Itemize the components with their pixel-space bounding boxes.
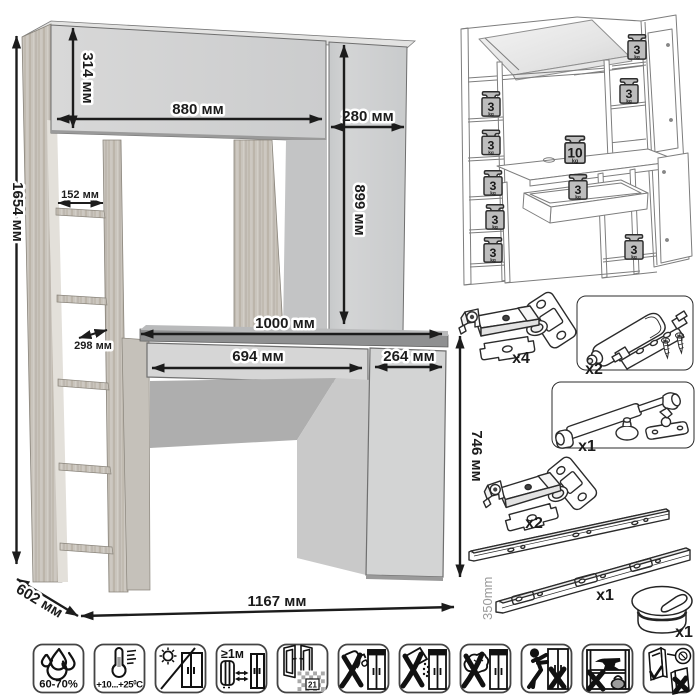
svg-text:+10...+250С: +10...+250С [96, 680, 143, 691]
svg-text:kg: kg [488, 111, 494, 117]
svg-text:≥1м: ≥1м [221, 647, 244, 661]
svg-text:kg: kg [631, 254, 637, 260]
svg-text:152 мм: 152 мм [61, 189, 99, 201]
svg-text:280 мм: 280 мм [342, 108, 393, 125]
svg-text:350mm: 350mm [480, 577, 495, 620]
svg-text:x1: x1 [578, 438, 596, 455]
svg-text:kg: kg [575, 194, 581, 200]
svg-text:1654 мм: 1654 мм [9, 182, 26, 242]
svg-text:x1: x1 [675, 624, 693, 641]
svg-text:x4: x4 [512, 350, 530, 367]
svg-text:880 мм: 880 мм [172, 101, 223, 118]
svg-text:kg: kg [490, 257, 496, 263]
svg-text:kg: kg [572, 159, 578, 165]
svg-text:kg: kg [492, 224, 498, 230]
svg-text:694 мм: 694 мм [232, 348, 283, 365]
svg-text:x2: x2 [525, 515, 543, 532]
svg-text:1000 мм: 1000 мм [255, 315, 315, 332]
svg-text:kg: kg [634, 54, 640, 60]
svg-text:264 мм: 264 мм [383, 348, 434, 365]
svg-text:298 мм: 298 мм [74, 340, 112, 352]
svg-text:60-70%: 60-70% [39, 679, 78, 691]
svg-text:1167 мм: 1167 мм [248, 593, 307, 610]
svg-text:746 мм: 746 мм [468, 430, 485, 481]
svg-text:899 мм: 899 мм [351, 184, 368, 235]
svg-text:21: 21 [308, 680, 317, 689]
svg-text:x2: x2 [585, 361, 603, 378]
svg-text:kg: kg [626, 98, 632, 104]
svg-text:kg: kg [488, 150, 494, 156]
svg-text:kg: kg [490, 190, 496, 196]
svg-text:314 мм: 314 мм [79, 52, 96, 103]
svg-text:x1: x1 [596, 587, 614, 604]
